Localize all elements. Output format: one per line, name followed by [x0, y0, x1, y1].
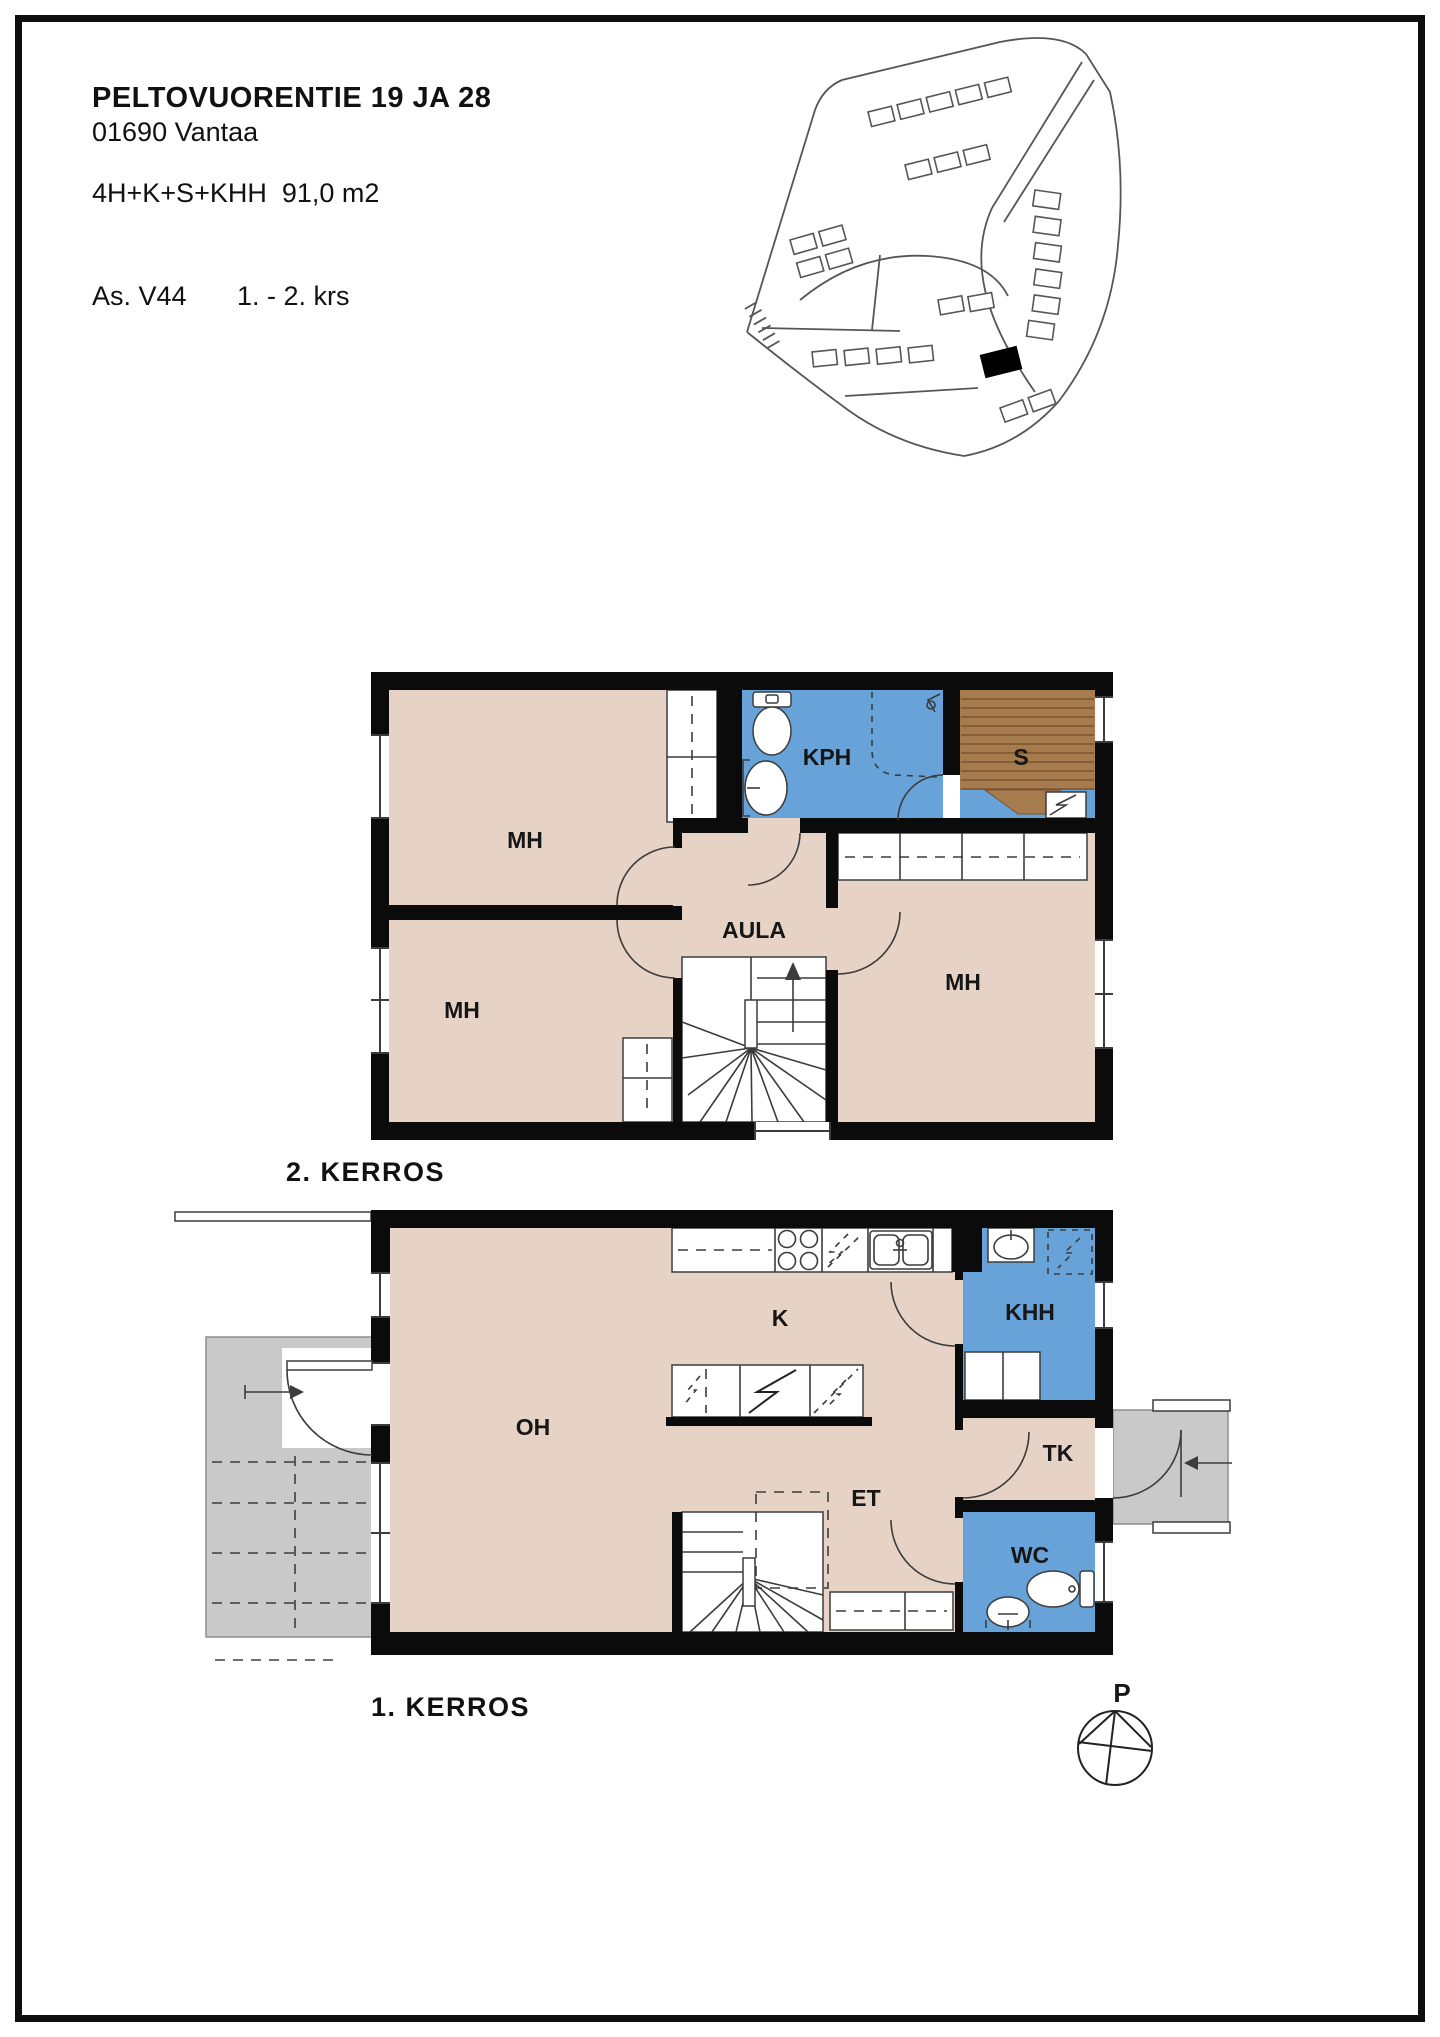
floor2-caption: 2. KERROS	[286, 1157, 445, 1187]
floor2-plan: MH KPH S AULA MH MH	[371, 672, 1113, 1140]
site-map	[745, 38, 1121, 456]
fireplace-island	[666, 1365, 872, 1426]
room-label-wc: WC	[1011, 1542, 1049, 1568]
floorplan-drawing: MH KPH S AULA MH MH 2. KERROS	[0, 0, 1440, 2037]
room-label-k: K	[772, 1305, 789, 1331]
stairs-floor2	[682, 957, 826, 1122]
khh-sink-icon	[988, 1228, 1034, 1262]
room-label-sauna: S	[1013, 744, 1028, 770]
room-label-mh-right: MH	[945, 969, 981, 995]
room-label-kph: KPH	[803, 744, 852, 770]
room-label-khh: KHH	[1005, 1299, 1055, 1325]
floorplan-page: PELTOVUORENTIE 19 JA 28 01690 Vantaa 4H+…	[0, 0, 1440, 2037]
toilet-icon-wc	[1027, 1571, 1094, 1607]
closet-row-mh-right	[838, 833, 1087, 880]
room-label-oh: OH	[516, 1414, 551, 1440]
closet-mh-bottom	[623, 1038, 672, 1122]
stairs-floor1	[672, 1512, 823, 1632]
floor1-plan: OH K KHH TK ET WC	[175, 1210, 1232, 1660]
entrance-porch	[1113, 1400, 1232, 1533]
floor1-caption: 1. KERROS	[371, 1692, 530, 1722]
site-map-location-marker	[980, 346, 1023, 378]
toilet-icon-kph	[753, 692, 791, 755]
room-label-mh-bottom-left: MH	[444, 997, 480, 1023]
room-label-aula: AULA	[722, 917, 786, 943]
compass-icon: P	[1078, 1678, 1152, 1785]
room-label-tk: TK	[1043, 1440, 1074, 1466]
room-label-mh-top-left: MH	[507, 827, 543, 853]
sauna-stove-icon	[1046, 792, 1086, 818]
fence-line	[175, 1212, 371, 1221]
room-label-et: ET	[851, 1485, 880, 1511]
kitchen-counter	[672, 1228, 952, 1272]
compass-north-label: P	[1113, 1678, 1130, 1708]
site-map-houses	[790, 77, 1075, 422]
wardrobe-mh-top	[667, 690, 717, 822]
khh-cabinets	[965, 1352, 1040, 1400]
closet-et	[830, 1592, 953, 1630]
